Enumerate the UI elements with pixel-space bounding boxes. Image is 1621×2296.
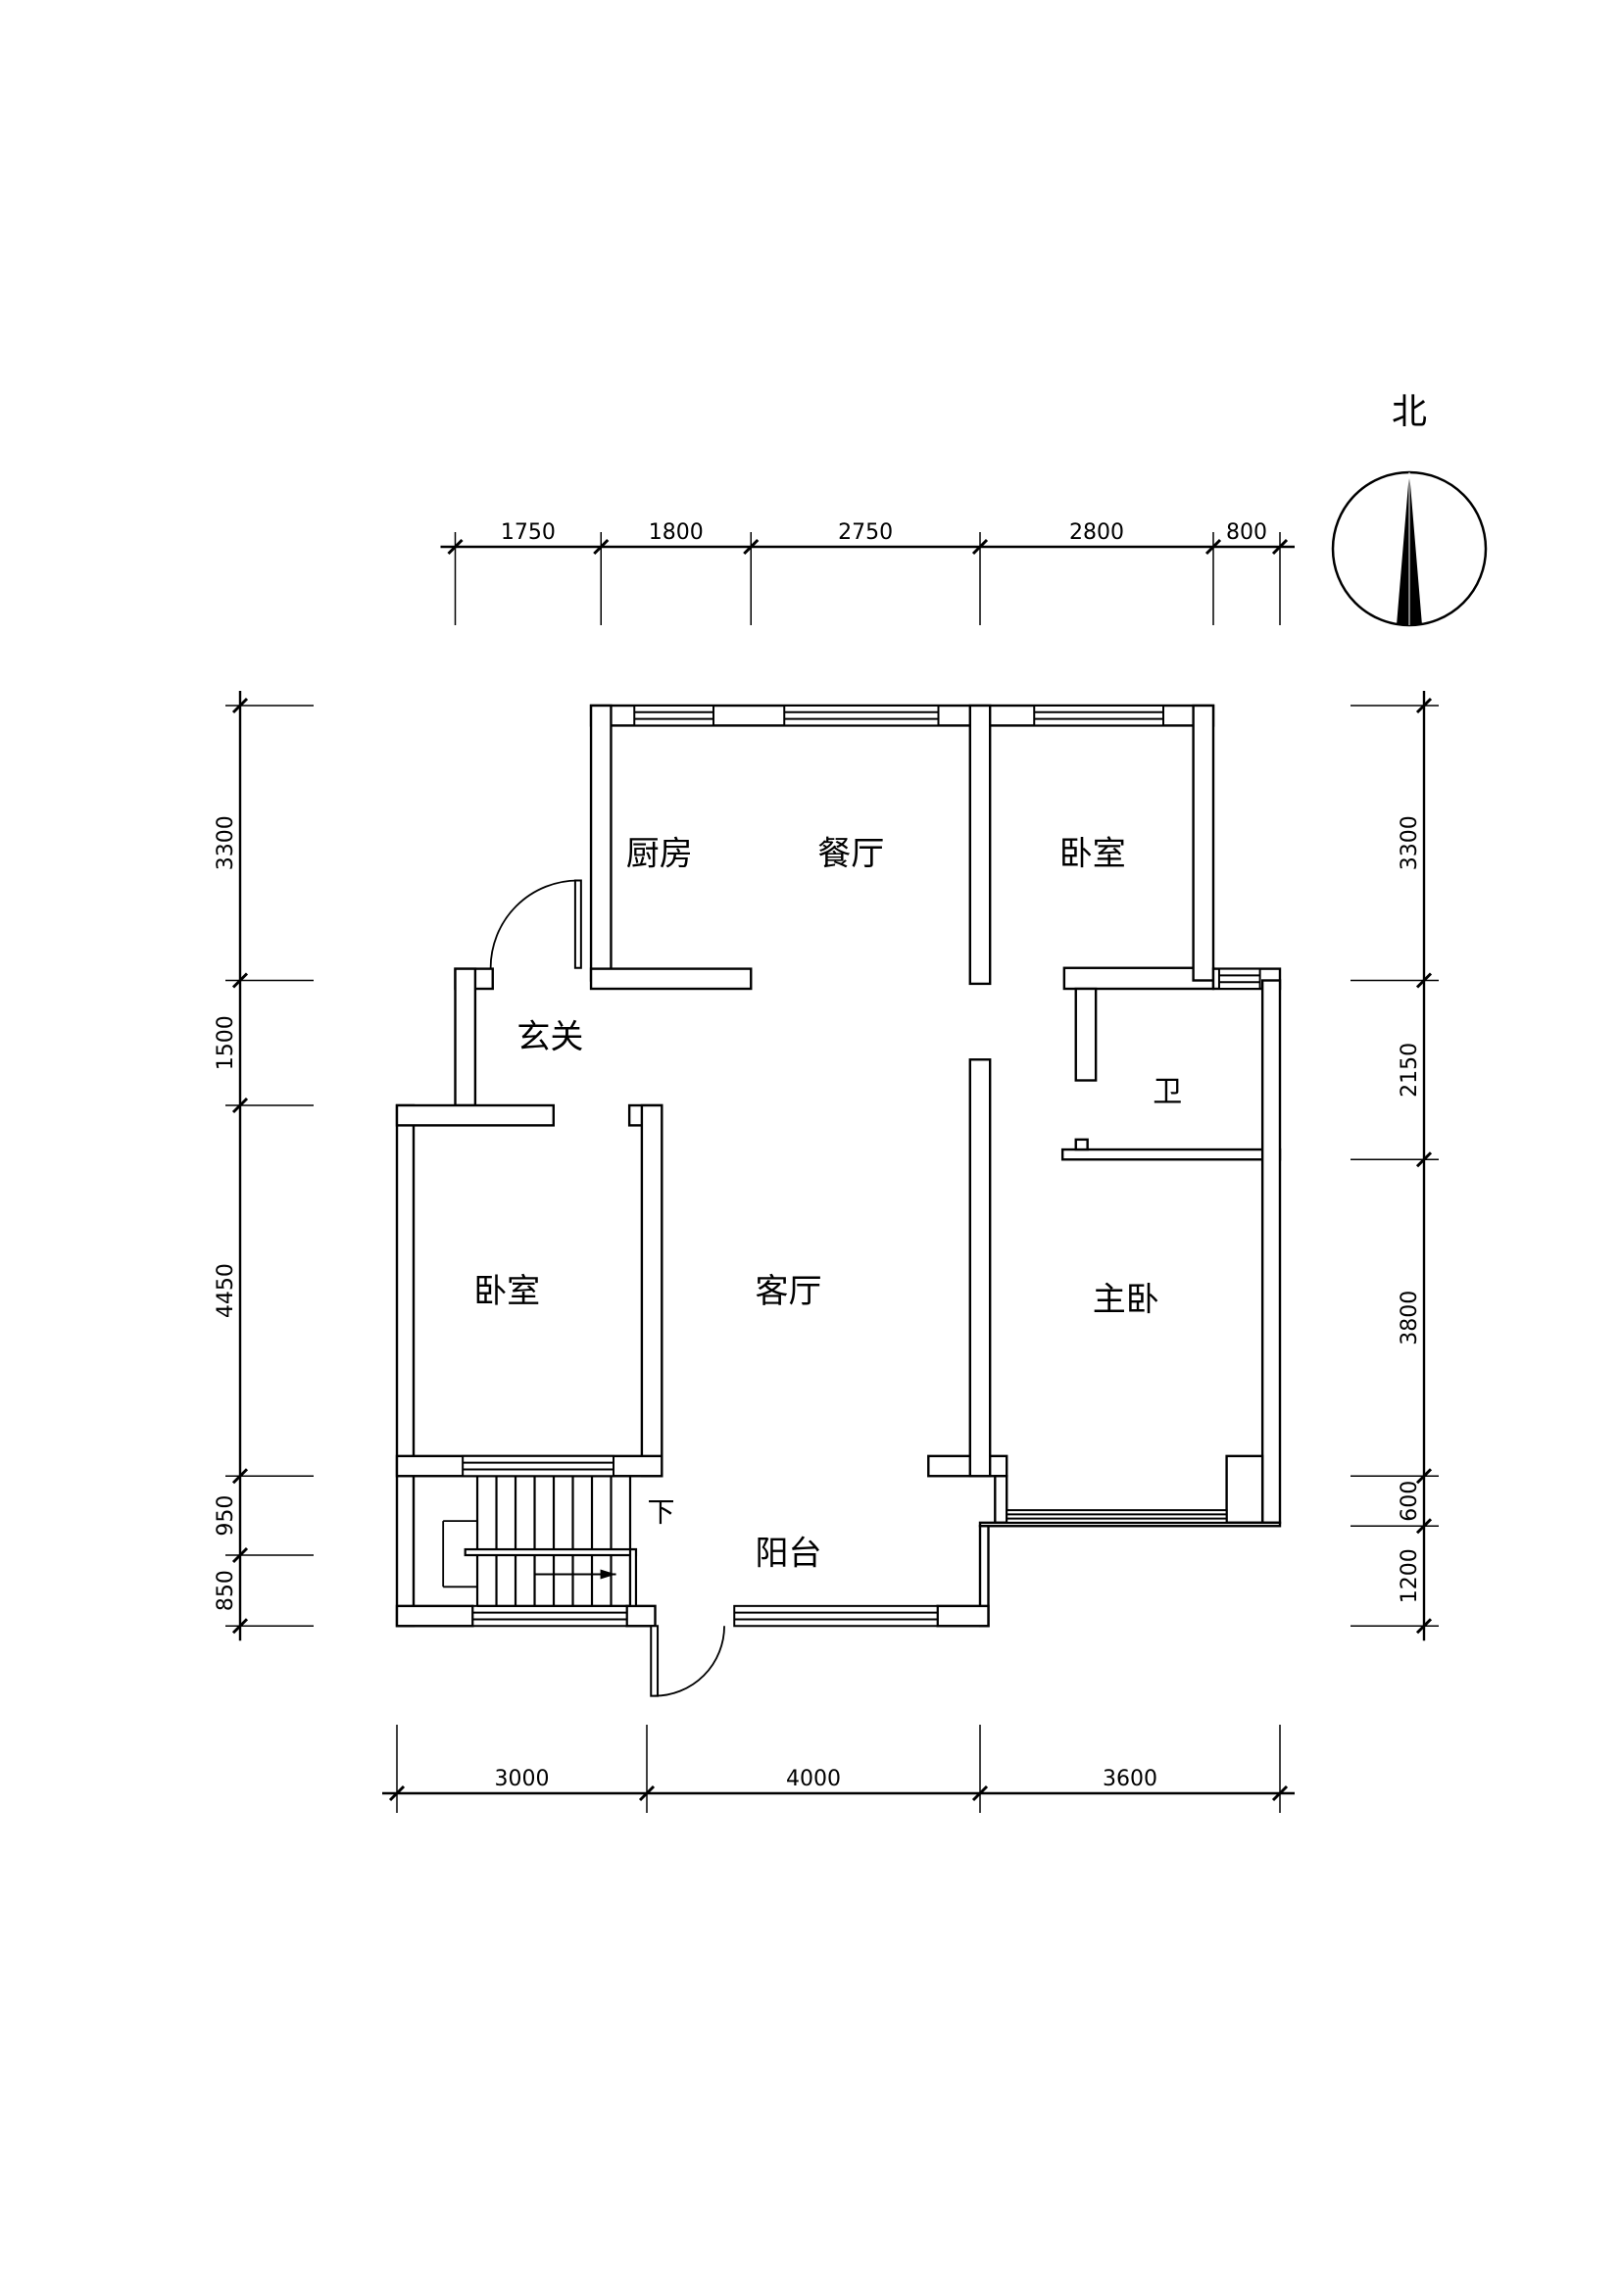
room-label-dining: 餐厅 [817,835,884,874]
bay-east-jamb [1227,1456,1263,1523]
dimension-value: 4450 [214,1263,238,1318]
dimension-value: 2750 [838,520,893,545]
balcony-south-wall-east [938,1606,989,1626]
dimension-left: 330015004450950850 [214,691,314,1640]
bath-south-wall [1062,1149,1280,1159]
dimension-top: 1750180027502800800 [441,520,1296,625]
blueprint-page: 1750180027502800800300040003600330015004… [0,0,1621,2292]
dimension-value: 2150 [1398,1043,1422,1098]
dimension-value: 600 [1398,1481,1422,1522]
bedroom-ne-east-wall [1194,706,1213,981]
stairwell-window-frame [463,1456,614,1476]
dimension-bottom: 300040003600 [382,1725,1295,1813]
bath-south-wall-notch [1076,1140,1088,1149]
dimension-value: 1500 [214,1015,238,1070]
dimension-value: 800 [1226,520,1267,545]
bedroom-ne-window [1034,706,1163,725]
bath-window-frame [1219,969,1260,989]
bath-window [1219,969,1260,989]
dimension-value: 3800 [1398,1291,1422,1345]
dimension-value: 1800 [649,520,704,545]
master-bay-window-frame [1007,1510,1226,1523]
dimension-right: 3300215038006001200 [1351,691,1439,1640]
entry-door [491,881,581,968]
stairwell-window [463,1456,614,1476]
central-divider-lower [970,1059,990,1476]
floorplan-drawing: 1750180027502800800300040003600330015004… [0,0,1621,2292]
dimension-value: 3000 [495,1767,550,1791]
kitchen-window-frame [634,706,713,725]
balcony-door-leaf [651,1626,658,1695]
room-label-stairs-down: 下 [647,1496,674,1529]
dimension-value: 3300 [1398,815,1422,870]
bedroom-w-north-wall-a [397,1105,554,1125]
north-label: 北 [1392,392,1427,432]
dining-window [784,706,938,725]
bedroom-w-east-wall [642,1105,662,1476]
dimension-value: 1750 [501,520,556,545]
room-label-living: 客厅 [756,1272,822,1311]
kitchen-south-wall [591,969,751,989]
bedroom-ne-window-frame [1034,706,1163,725]
dimension-value: 3600 [1103,1767,1157,1791]
room-label-entry-hall: 玄关 [516,1018,583,1057]
dimension-value: 2800 [1069,520,1124,545]
entry-door-leaf [575,881,581,968]
entry-west-wall [456,969,475,1105]
entry-door-swing-arc [491,881,578,968]
balcony-door [651,1626,724,1695]
room-label-balcony: 阳台 [756,1535,822,1574]
stair-direction-arrowhead [601,1570,616,1580]
west-exterior-wall [397,1105,414,1626]
bay-west-jamb [995,1476,1007,1523]
dimension-value: 4000 [786,1767,841,1791]
room-label-master-bedroom: 主卧 [1093,1280,1159,1319]
north-compass: 北 [1333,392,1486,625]
central-divider-upper [970,706,990,984]
balcony-window-east-frame [734,1606,937,1626]
room-label-bedroom-ne: 卧室 [1059,835,1126,874]
east-exterior-wall [1262,981,1280,1523]
dimension-value: 3300 [214,815,238,870]
dimension-value: 1200 [1398,1548,1422,1603]
bedroom-ne-south-wall [1064,968,1213,989]
balcony-south-wall-mid [627,1606,656,1626]
balcony-door-swing-arc [655,1626,724,1695]
kitchen-window [634,706,713,725]
balcony-window-west [472,1606,626,1626]
room-label-bedroom-w: 卧室 [473,1272,540,1311]
dimension-value: 850 [214,1570,238,1611]
kitchen-west-wall [591,706,611,981]
master-bay-window [1007,1510,1226,1523]
dining-window-frame [784,706,938,725]
bath-west-stub-wall [1076,989,1096,1081]
living-south-pier [928,1456,1007,1476]
balcony-window-east [734,1606,937,1626]
balcony-south-wall-west [397,1606,472,1626]
stair-return-divider [466,1549,636,1555]
dimension-value: 950 [214,1495,238,1537]
room-label-kitchen: 厨房 [626,835,693,874]
balcony-window-west-frame [472,1606,626,1626]
stairs-group [443,1476,636,1606]
room-label-bathroom: 卫 [1153,1075,1182,1109]
stair-stringer [630,1549,636,1606]
